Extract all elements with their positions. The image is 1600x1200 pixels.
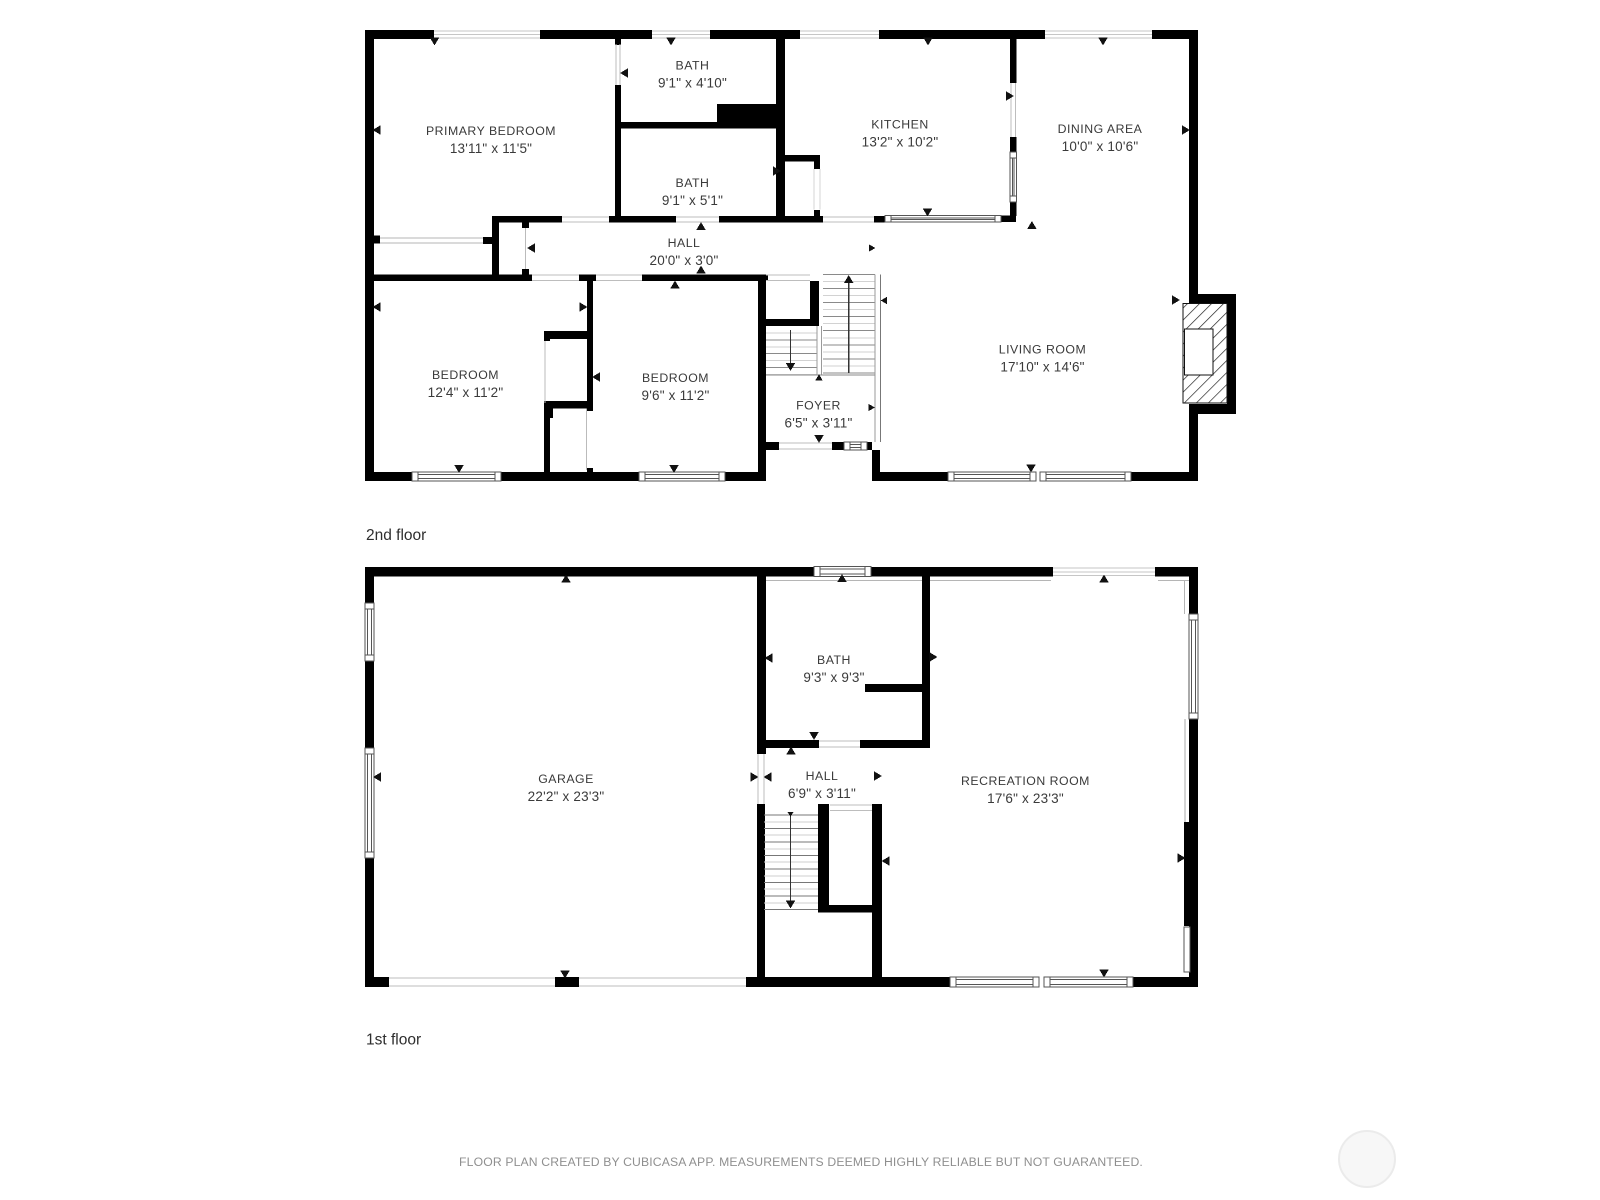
svg-text:GARAGE: GARAGE <box>538 772 594 786</box>
svg-text:FLOOR PLAN CREATED BY CUBICASA: FLOOR PLAN CREATED BY CUBICASA APP. MEAS… <box>459 1155 1143 1169</box>
svg-text:12'4" x 11'2": 12'4" x 11'2" <box>428 385 504 400</box>
svg-text:9'1" x 5'1": 9'1" x 5'1" <box>662 193 723 208</box>
svg-text:BATH: BATH <box>817 653 851 667</box>
svg-text:6'9" x 3'11": 6'9" x 3'11" <box>788 786 856 801</box>
svg-text:HALL: HALL <box>668 236 701 250</box>
svg-text:17'10" x 14'6": 17'10" x 14'6" <box>1000 360 1084 375</box>
svg-text:LIVING ROOM: LIVING ROOM <box>999 343 1087 357</box>
svg-text:BEDROOM: BEDROOM <box>642 371 709 385</box>
svg-text:DINING AREA: DINING AREA <box>1058 122 1143 136</box>
svg-text:1st floor: 1st floor <box>366 1032 421 1049</box>
svg-text:9'1" x 4'10": 9'1" x 4'10" <box>658 76 727 91</box>
svg-text:17'6" x 23'3": 17'6" x 23'3" <box>987 791 1064 806</box>
svg-text:22'2" x 23'3": 22'2" x 23'3" <box>528 789 605 804</box>
svg-text:RECREATION ROOM: RECREATION ROOM <box>961 774 1090 788</box>
svg-text:20'0" x 3'0": 20'0" x 3'0" <box>650 253 719 268</box>
svg-text:PRIMARY BEDROOM: PRIMARY BEDROOM <box>426 124 556 138</box>
svg-text:9'6" x 11'2": 9'6" x 11'2" <box>642 388 710 403</box>
svg-text:BEDROOM: BEDROOM <box>432 368 499 382</box>
svg-text:BATH: BATH <box>676 176 710 190</box>
svg-text:13'11" x 11'5": 13'11" x 11'5" <box>450 141 532 156</box>
svg-text:BATH: BATH <box>676 59 710 73</box>
svg-text:9'3" x 9'3": 9'3" x 9'3" <box>803 670 864 685</box>
svg-text:13'2" x 10'2": 13'2" x 10'2" <box>862 135 939 150</box>
svg-text:10'0" x 10'6": 10'0" x 10'6" <box>1062 139 1139 154</box>
svg-text:HALL: HALL <box>806 769 839 783</box>
svg-text:KITCHEN: KITCHEN <box>871 118 928 132</box>
svg-text:FOYER: FOYER <box>796 399 841 413</box>
svg-text:2nd floor: 2nd floor <box>366 527 426 544</box>
svg-text:6'5" x 3'11": 6'5" x 3'11" <box>785 416 853 431</box>
